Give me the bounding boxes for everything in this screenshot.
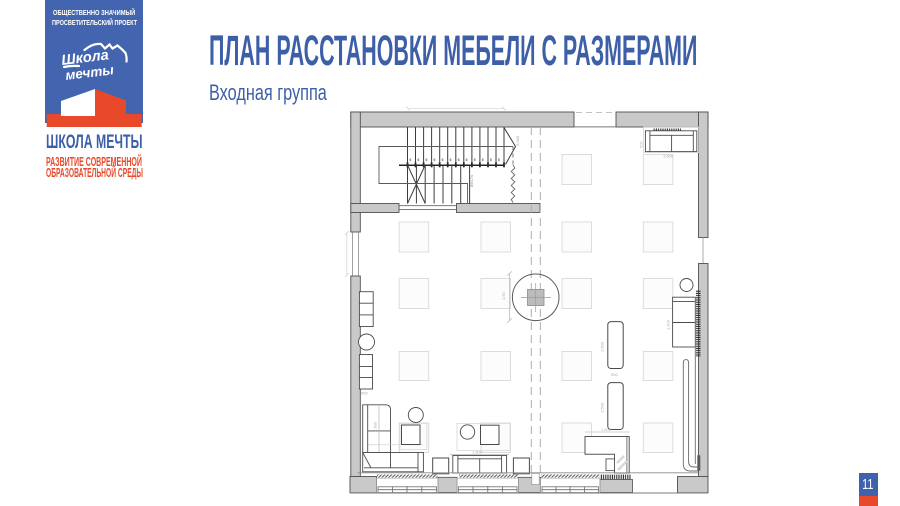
svg-text:1.500: 1.500 [600,402,605,413]
svg-text:2.300: 2.300 [373,421,378,432]
svg-text:1.600: 1.600 [663,154,674,159]
svg-text:1,50: 1,50 [501,291,506,300]
svg-text:1.500: 1.500 [600,341,605,352]
svg-text:1.400: 1.400 [666,319,671,330]
svg-text:890,7x: 890,7x [469,175,474,187]
svg-text:2,040: 2,040 [515,135,520,146]
svg-text:500: 500 [361,391,368,396]
svg-text:1.800: 1.800 [472,450,483,455]
svg-text:1.600: 1.600 [601,427,612,432]
svg-text:500: 500 [639,141,644,148]
svg-text:500: 500 [611,372,618,377]
